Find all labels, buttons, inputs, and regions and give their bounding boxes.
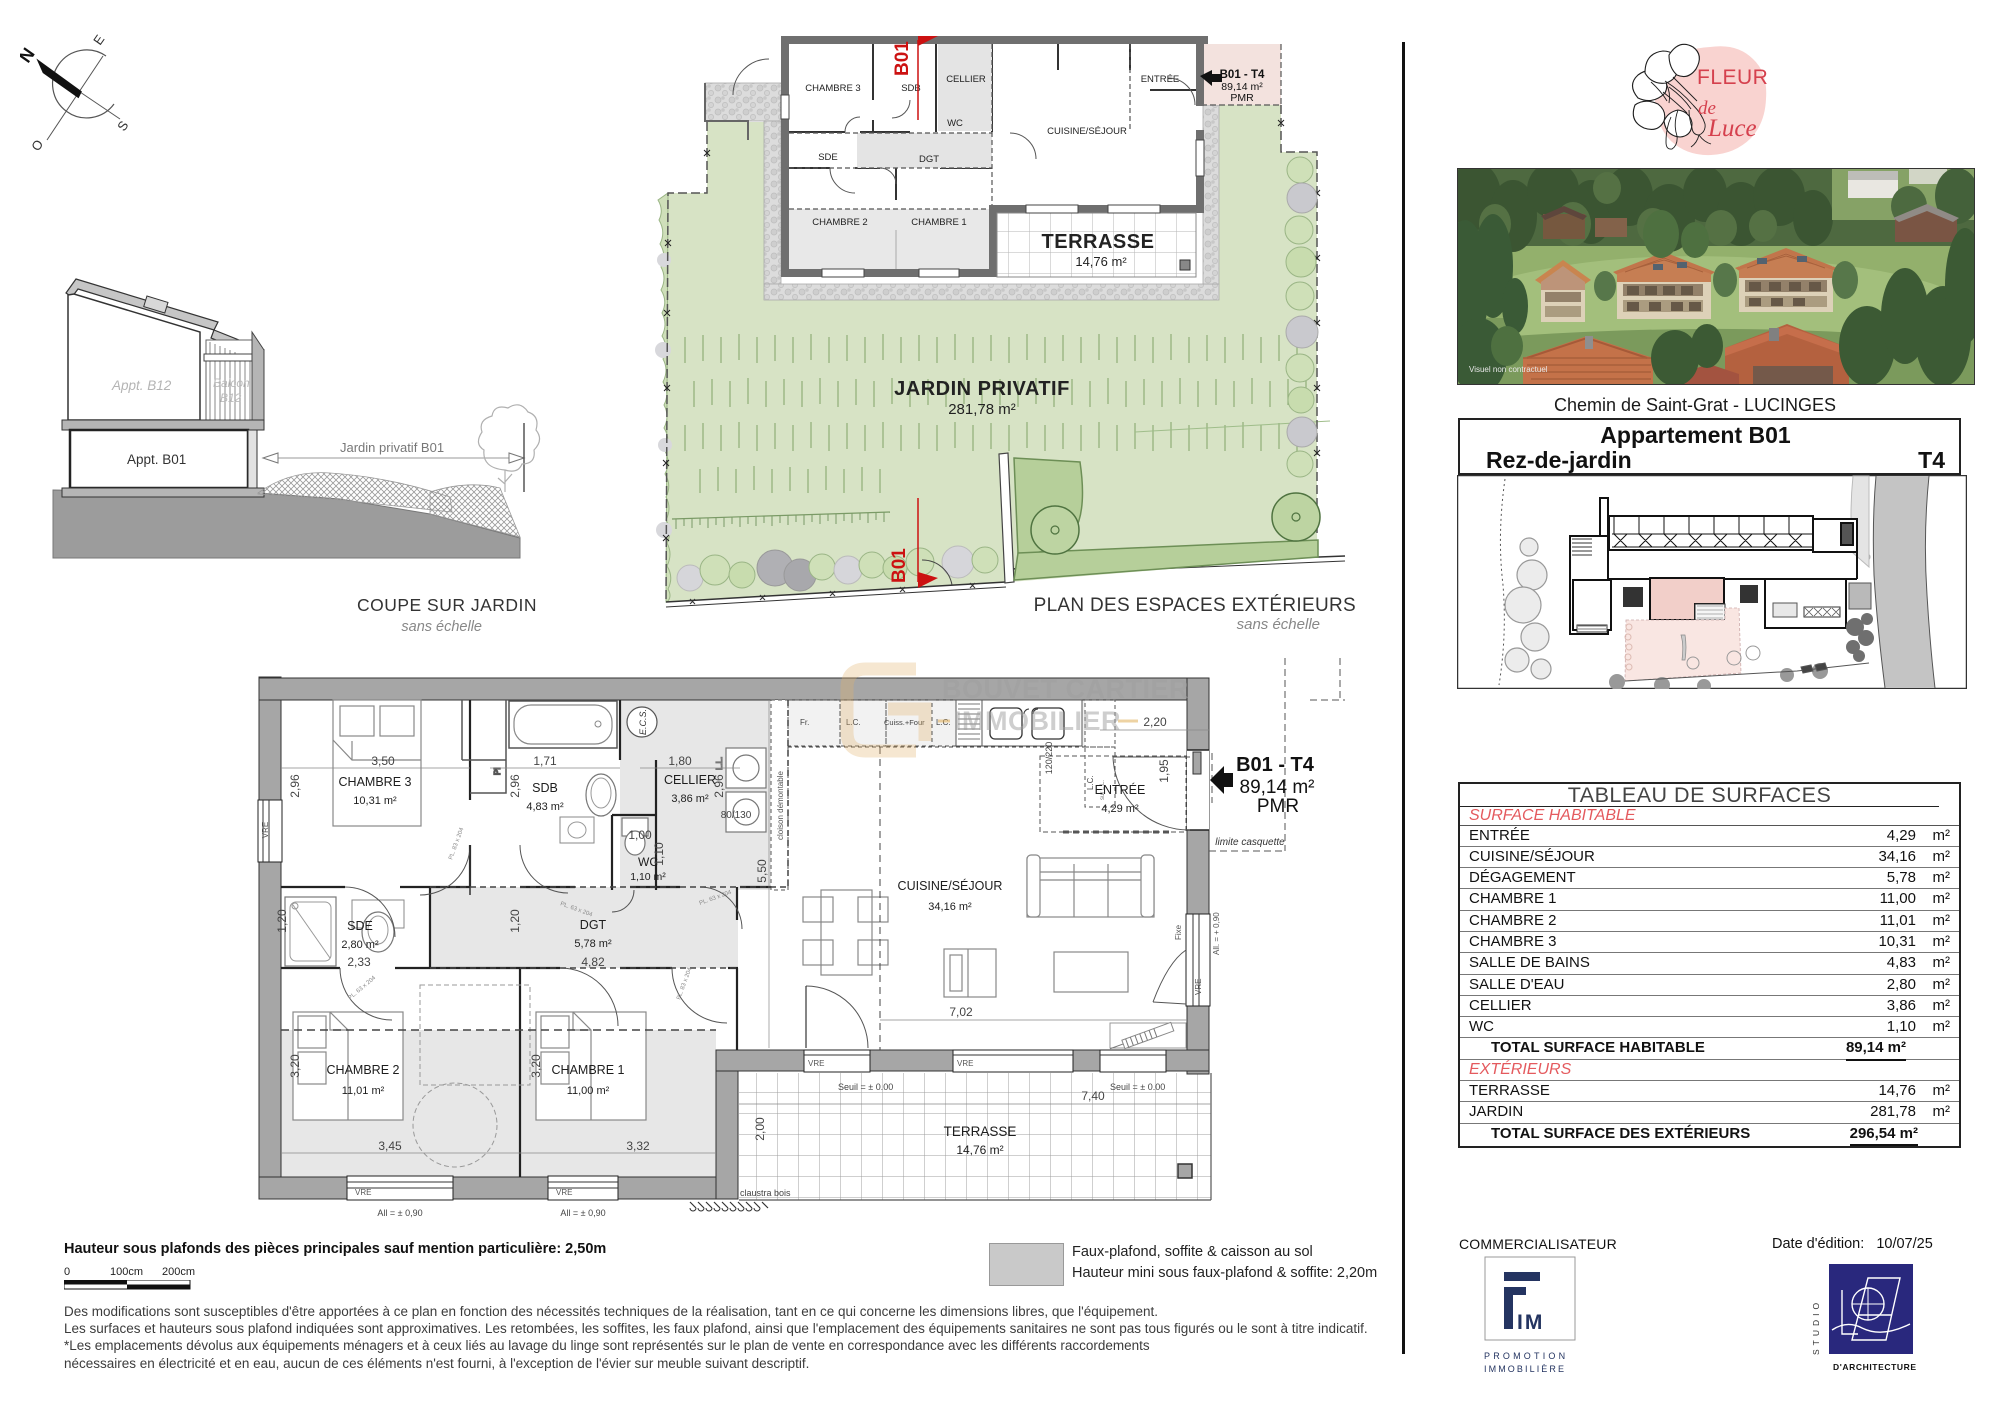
svg-text:limite casquette: limite casquette — [1215, 837, 1285, 848]
svg-text:5,78 m²: 5,78 m² — [574, 938, 612, 950]
svg-text:4,82: 4,82 — [581, 955, 605, 969]
svg-text:D'ARCHITECTURE: D'ARCHITECTURE — [1833, 1362, 1917, 1372]
svg-text:IMMOBILIÈRE: IMMOBILIÈRE — [1484, 1364, 1566, 1374]
svg-text:2,33: 2,33 — [347, 955, 371, 969]
svg-text:E.C.S.: E.C.S. — [638, 709, 648, 735]
svg-text:S: S — [114, 118, 131, 134]
svg-text:Jardin privatif B01: Jardin privatif B01 — [340, 440, 444, 455]
svg-text:80/130: 80/130 — [721, 810, 752, 821]
svg-text:Balcon: Balcon — [213, 376, 250, 390]
svg-text:CHAMBRE 2: CHAMBRE 2 — [812, 217, 867, 228]
svg-text:SDB: SDB — [532, 781, 558, 795]
svg-text:TERRASSE: TERRASSE — [1042, 231, 1155, 253]
svg-text:DGT: DGT — [919, 154, 939, 165]
svg-text:1,71: 1,71 — [533, 754, 557, 768]
svg-text:Visuel non contractuel: Visuel non contractuel — [1469, 365, 1548, 374]
svg-text:CHAMBRE 3: CHAMBRE 3 — [805, 83, 860, 94]
svg-text:IMMOBILIER: IMMOBILIER — [954, 706, 1121, 736]
svg-text:N: N — [20, 44, 39, 66]
svg-text:VRE: VRE — [957, 1059, 973, 1068]
svg-text:B12: B12 — [220, 391, 242, 405]
svg-text:4,83 m²: 4,83 m² — [526, 801, 564, 813]
svg-text:Seuil = ± 0.00: Seuil = ± 0.00 — [838, 1082, 893, 1092]
svg-text:7,40: 7,40 — [1081, 1089, 1105, 1103]
svg-text:SDE: SDE — [347, 919, 373, 933]
svg-text:O: O — [28, 137, 46, 154]
svg-text:3,86 m²: 3,86 m² — [671, 793, 709, 805]
svg-text:VRE: VRE — [1194, 979, 1203, 995]
svg-text:FLEUR: FLEUR — [1697, 66, 1768, 89]
svg-text:COUPE SUR JARDIN: COUPE SUR JARDIN — [357, 595, 537, 615]
svg-text:1,10 m²: 1,10 m² — [630, 871, 666, 883]
svg-text:B01: B01 — [892, 41, 913, 76]
svg-text:CHAMBRE 1: CHAMBRE 1 — [911, 217, 966, 228]
svg-text:IM: IM — [1517, 1311, 1544, 1334]
svg-text:cloison démontable: cloison démontable — [776, 771, 785, 840]
svg-text:All = ± 0,90: All = ± 0,90 — [560, 1208, 605, 1218]
svg-text:CHAMBRE 1: CHAMBRE 1 — [552, 1063, 625, 1077]
svg-text:B01 - T4: B01 - T4 — [1220, 69, 1265, 81]
svg-text:1,20: 1,20 — [275, 909, 289, 933]
svg-text:B01: B01 — [889, 548, 910, 583]
svg-text:CUISINE/SÉJOUR: CUISINE/SÉJOUR — [898, 878, 1003, 893]
svg-text:PMR: PMR — [1257, 796, 1299, 817]
svg-text:CHAMBRE 3: CHAMBRE 3 — [339, 775, 412, 789]
svg-text:CELLIER: CELLIER — [664, 773, 716, 787]
svg-text:3,20: 3,20 — [529, 1054, 543, 1078]
svg-text:89,14 m²: 89,14 m² — [1240, 777, 1315, 798]
svg-text:TERRASSE: TERRASSE — [944, 1124, 1017, 1139]
svg-text:PMR: PMR — [1230, 92, 1254, 104]
svg-text:Appt. B01: Appt. B01 — [127, 452, 186, 467]
svg-text:3,20: 3,20 — [288, 1054, 302, 1078]
svg-text:ENTRÉE: ENTRÉE — [1141, 74, 1180, 85]
svg-text:Luce: Luce — [1707, 115, 1757, 142]
svg-text:PI: PI — [493, 767, 502, 775]
svg-text:14,76 m²: 14,76 m² — [956, 1143, 1003, 1157]
svg-text:2,00: 2,00 — [753, 1117, 767, 1141]
svg-text:SDE: SDE — [818, 152, 838, 163]
svg-text:PROMOTION: PROMOTION — [1484, 1351, 1568, 1361]
svg-text:1,80: 1,80 — [668, 754, 692, 768]
svg-text:sans échelle: sans échelle — [1237, 616, 1320, 633]
svg-text:3,50: 3,50 — [371, 754, 395, 768]
svg-text:1,00: 1,00 — [628, 828, 652, 842]
svg-text:10,31 m²: 10,31 m² — [353, 795, 397, 807]
svg-text:All = ± 0,90: All = ± 0,90 — [377, 1208, 422, 1218]
svg-text:PL. 83 x 204: PL. 83 x 204 — [448, 826, 465, 860]
svg-text:CHAMBRE 2: CHAMBRE 2 — [327, 1063, 400, 1077]
svg-text:Fr.: Fr. — [800, 718, 809, 727]
svg-text:3,32: 3,32 — [626, 1139, 650, 1153]
svg-text:VRE: VRE — [808, 1059, 824, 1068]
svg-text:L.C.: L.C. — [1086, 775, 1095, 790]
svg-text:3,45: 3,45 — [378, 1139, 402, 1153]
svg-text:34,16 m²: 34,16 m² — [928, 901, 972, 913]
svg-text:4,29 m²: 4,29 m² — [1101, 803, 1139, 815]
svg-text:ENTRÉE: ENTRÉE — [1095, 782, 1146, 797]
svg-text:Appt. B12: Appt. B12 — [111, 378, 172, 393]
svg-text:VRE: VRE — [556, 1188, 572, 1197]
svg-text:All. = + 0,90: All. = + 0,90 — [1212, 912, 1221, 955]
svg-text:281,78 m²: 281,78 m² — [948, 401, 1016, 418]
svg-text:sans échelle: sans échelle — [401, 619, 482, 635]
svg-text:14,76 m²: 14,76 m² — [1075, 254, 1127, 269]
svg-text:CELLIER: CELLIER — [946, 74, 986, 85]
svg-text:DGT: DGT — [580, 918, 607, 932]
svg-text:JARDIN PRIVATIF: JARDIN PRIVATIF — [894, 378, 1070, 400]
svg-text:VRE: VRE — [355, 1188, 371, 1197]
svg-text:STUDIO: STUDIO — [1811, 1299, 1821, 1355]
svg-text:claustra bois: claustra bois — [740, 1188, 791, 1198]
svg-text:WC: WC — [638, 855, 658, 869]
svg-text:1,20: 1,20 — [508, 909, 522, 933]
svg-text:PL. 83 x 204: PL. 83 x 204 — [676, 966, 693, 1000]
svg-text:PLAN DES ESPACES EXTÉRIEURS: PLAN DES ESPACES EXTÉRIEURS — [1034, 595, 1356, 616]
svg-text:CUISINE/SÉJOUR: CUISINE/SÉJOUR — [1047, 126, 1127, 137]
svg-text:E: E — [90, 32, 107, 48]
svg-text:11,00 m²: 11,00 m² — [567, 1085, 610, 1097]
svg-text:WC: WC — [947, 118, 963, 129]
svg-text:5,50: 5,50 — [755, 859, 769, 883]
svg-text:11,01 m²: 11,01 m² — [342, 1085, 385, 1097]
svg-text:2,80 m²: 2,80 m² — [341, 939, 379, 951]
svg-text:BOUVET CARTIER: BOUVET CARTIER — [942, 674, 1189, 704]
svg-text:VRE: VRE — [261, 822, 270, 838]
svg-text:Seuil = ± 0.00: Seuil = ± 0.00 — [1110, 1082, 1165, 1092]
svg-text:Fixe: Fixe — [1174, 924, 1183, 940]
svg-text:2,96: 2,96 — [508, 774, 522, 798]
svg-text:PL. 63 x 204: PL. 63 x 204 — [347, 975, 377, 1002]
svg-text:2,96: 2,96 — [288, 774, 302, 798]
svg-text:7,02: 7,02 — [949, 1005, 973, 1019]
